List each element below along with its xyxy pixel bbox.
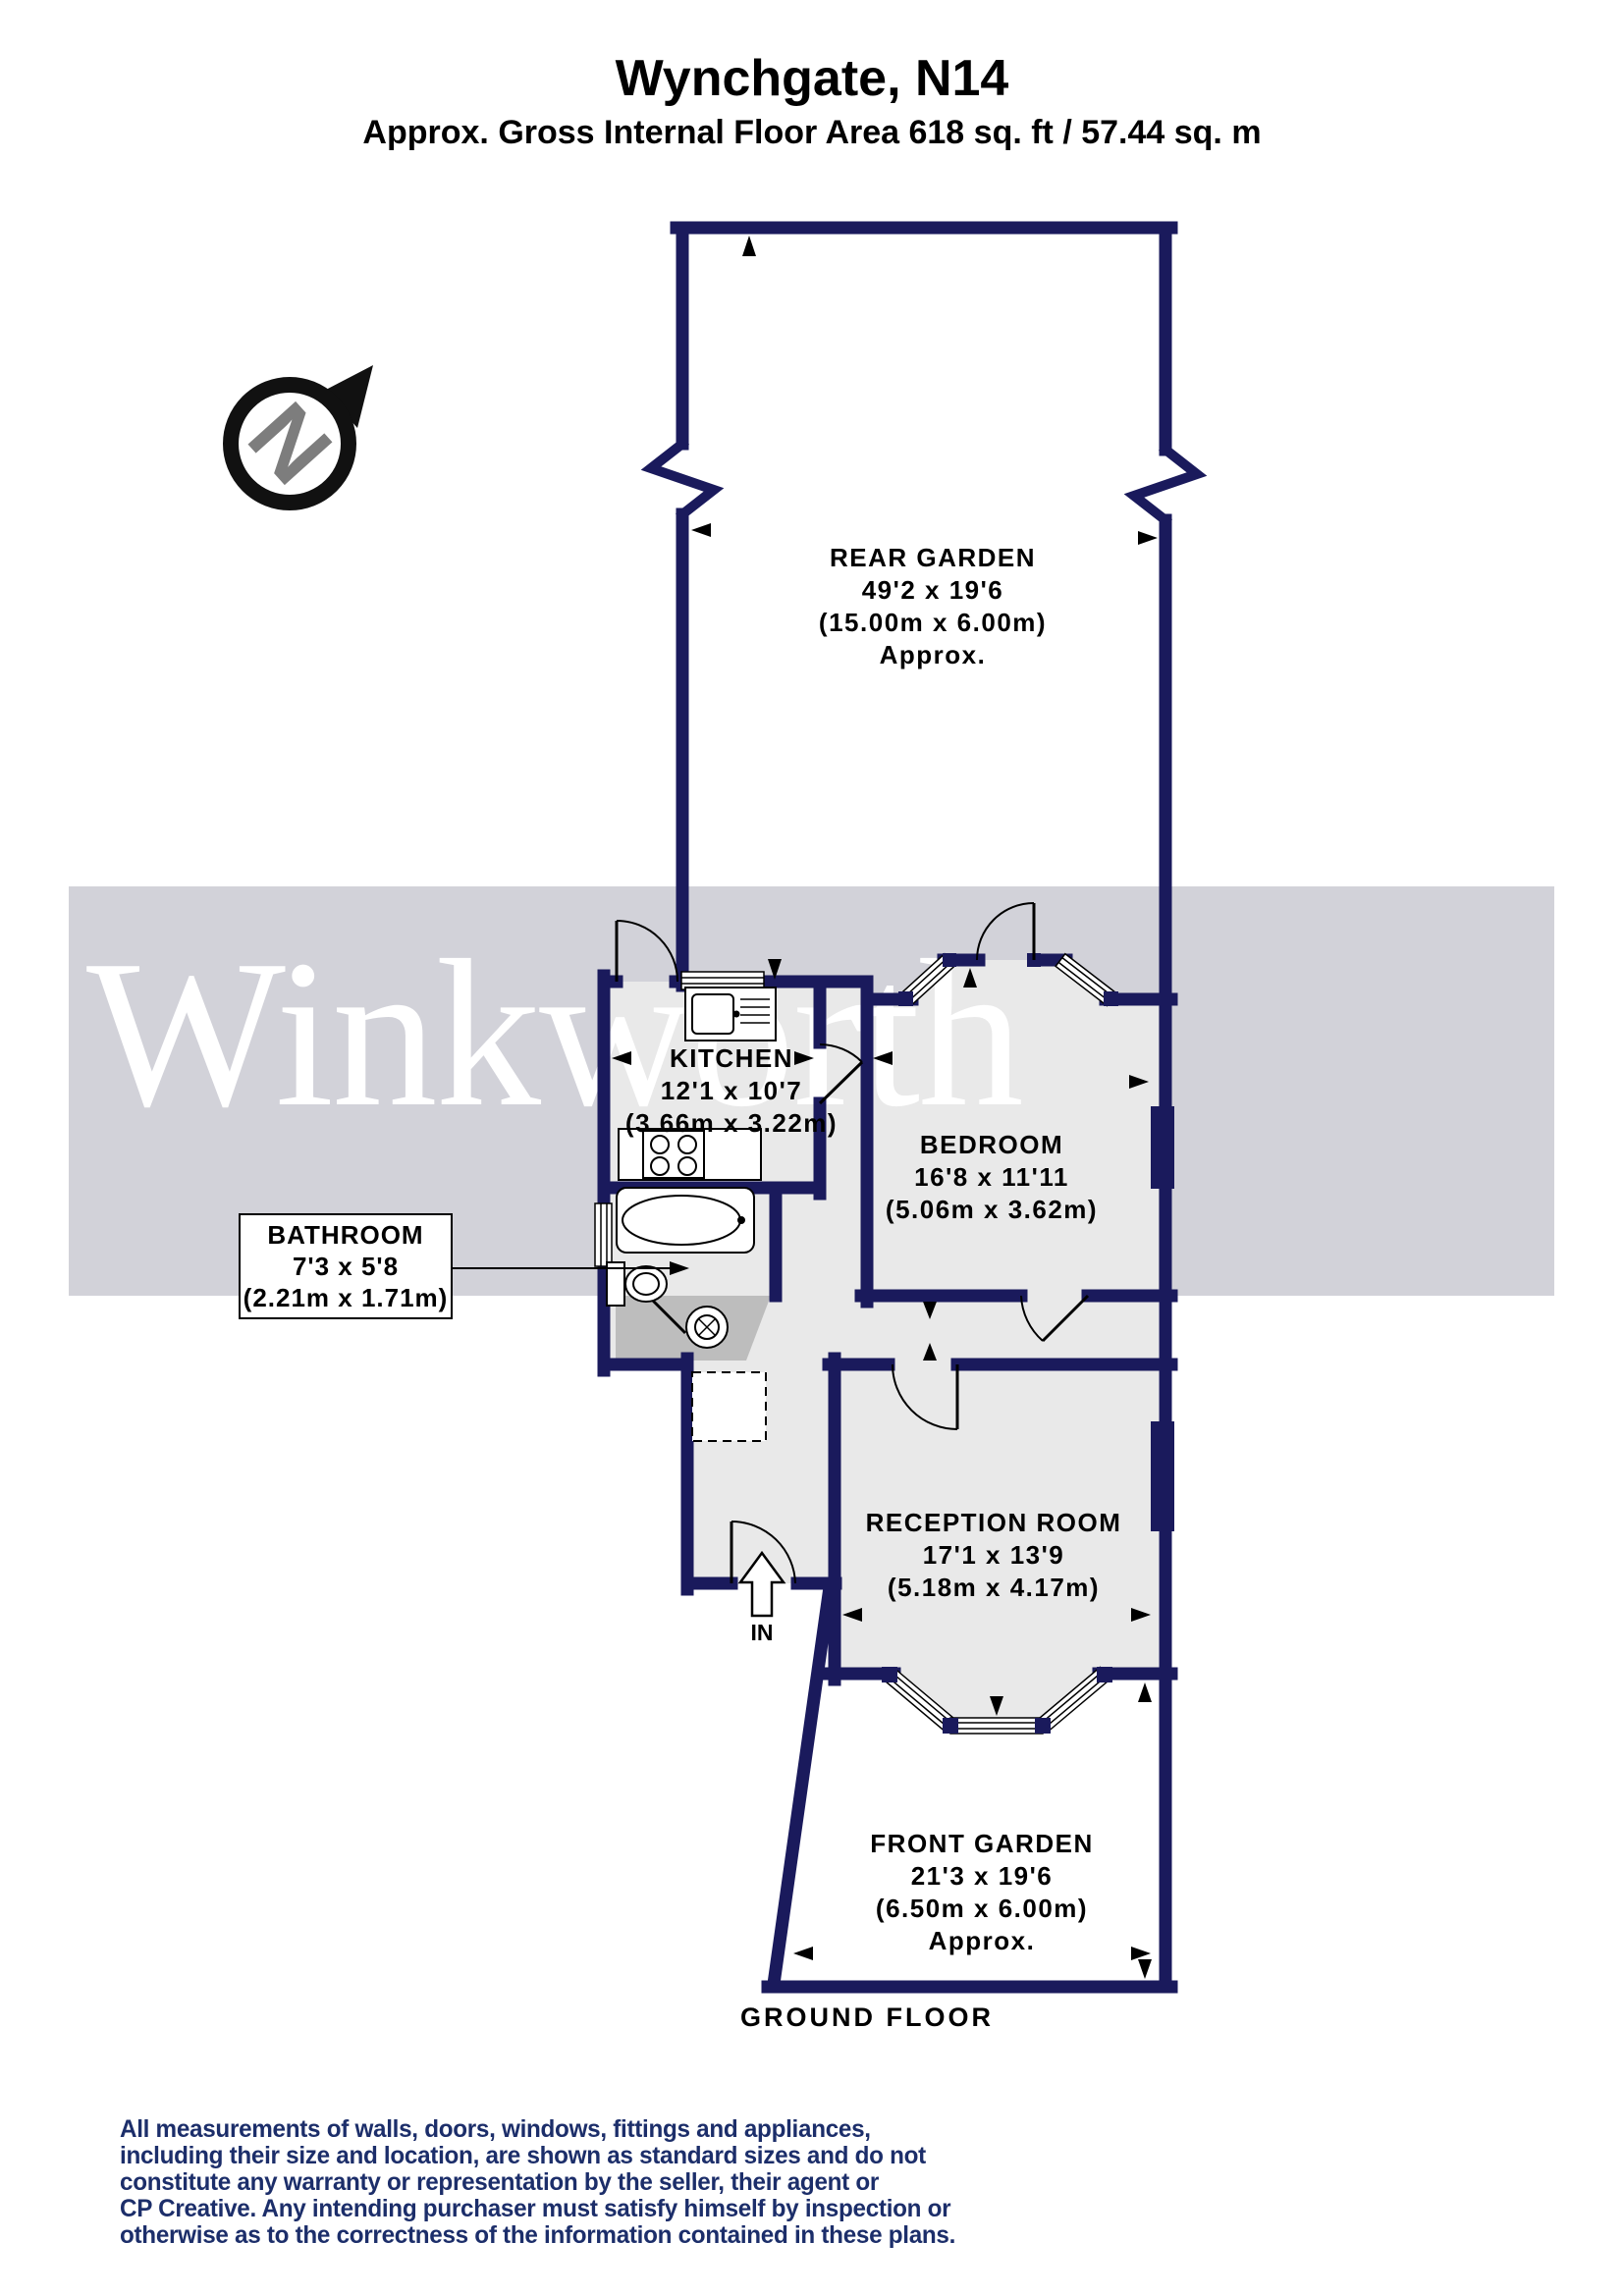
room-name: REAR GARDEN <box>819 542 1047 574</box>
room-label-front-garden: FRONT GARDEN 21'3 x 19'6 (6.50m x 6.00m)… <box>870 1828 1093 1957</box>
page-title: Wynchgate, N14 <box>0 49 1624 108</box>
room-dims-m: (6.50m x 6.00m) <box>870 1893 1093 1925</box>
disclaimer-line: CP Creative. Any intending purchaser mus… <box>120 2196 1072 2222</box>
floor-plan: Winkworth <box>0 0 1624 2296</box>
reception-window-block <box>1151 1421 1174 1531</box>
room-dims-ft: 12'1 x 10'7 <box>625 1075 838 1107</box>
bedroom-window-block <box>1151 1106 1174 1189</box>
ground-floor-label: GROUND FLOOR <box>740 2002 994 2033</box>
floorplan-page: Winkworth <box>0 0 1624 2296</box>
disclaimer-line: including their size and location, are s… <box>120 2143 1072 2169</box>
bathroom-window <box>595 1203 612 1266</box>
compass-icon: N <box>229 365 373 504</box>
room-dims-ft: 21'3 x 19'6 <box>870 1860 1093 1893</box>
sink-icon <box>685 988 776 1041</box>
room-name: BATHROOM <box>243 1219 449 1251</box>
room-dims-m: (2.21m x 1.71m) <box>243 1282 449 1313</box>
page-subtitle: Approx. Gross Internal Floor Area 618 sq… <box>0 114 1624 152</box>
basin-icon <box>686 1307 728 1348</box>
room-name: RECEPTION ROOM <box>866 1507 1122 1539</box>
disclaimer-line: constitute any warranty or representatio… <box>120 2169 1072 2196</box>
watermark-text: Winkworth <box>86 916 1022 1150</box>
room-dims-ft: 7'3 x 5'8 <box>243 1251 449 1282</box>
room-approx: Approx. <box>870 1925 1093 1957</box>
room-dims-m: (5.06m x 3.62m) <box>886 1194 1098 1226</box>
room-dims-ft: 16'8 x 11'11 <box>886 1161 1098 1194</box>
room-label-bedroom: BEDROOM 16'8 x 11'11 (5.06m x 3.62m) <box>886 1129 1098 1226</box>
room-dims-m: (15.00m x 6.00m) <box>819 607 1047 639</box>
disclaimer-line: otherwise as to the correctness of the i… <box>120 2222 1072 2249</box>
room-label-rear-garden: REAR GARDEN 49'2 x 19'6 (15.00m x 6.00m)… <box>819 542 1047 671</box>
reception-bay-window-bottom <box>950 1718 1043 1734</box>
room-dims-ft: 17'1 x 13'9 <box>866 1539 1122 1572</box>
cupboard-dashed <box>692 1372 766 1441</box>
room-label-kitchen: KITCHEN 12'1 x 10'7 (3.66m x 3.22m) <box>625 1042 838 1140</box>
entrance-in-label: IN <box>751 1620 774 1646</box>
room-dims-ft: 49'2 x 19'6 <box>819 574 1047 607</box>
disclaimer-line: All measurements of walls, doors, window… <box>120 2116 1072 2143</box>
room-label-reception-room: RECEPTION ROOM 17'1 x 13'9 (5.18m x 4.17… <box>866 1507 1122 1604</box>
bath-icon <box>617 1188 754 1253</box>
room-dims-m: (3.66m x 3.22m) <box>625 1107 838 1140</box>
room-label-bathroom: BATHROOM 7'3 x 5'8 (2.21m x 1.71m) <box>239 1213 453 1319</box>
room-name: FRONT GARDEN <box>870 1828 1093 1860</box>
room-name: BEDROOM <box>886 1129 1098 1161</box>
room-name: KITCHEN <box>625 1042 838 1075</box>
room-dims-m: (5.18m x 4.17m) <box>866 1572 1122 1604</box>
disclaimer: All measurements of walls, doors, window… <box>120 2116 1072 2249</box>
room-approx: Approx. <box>819 639 1047 671</box>
